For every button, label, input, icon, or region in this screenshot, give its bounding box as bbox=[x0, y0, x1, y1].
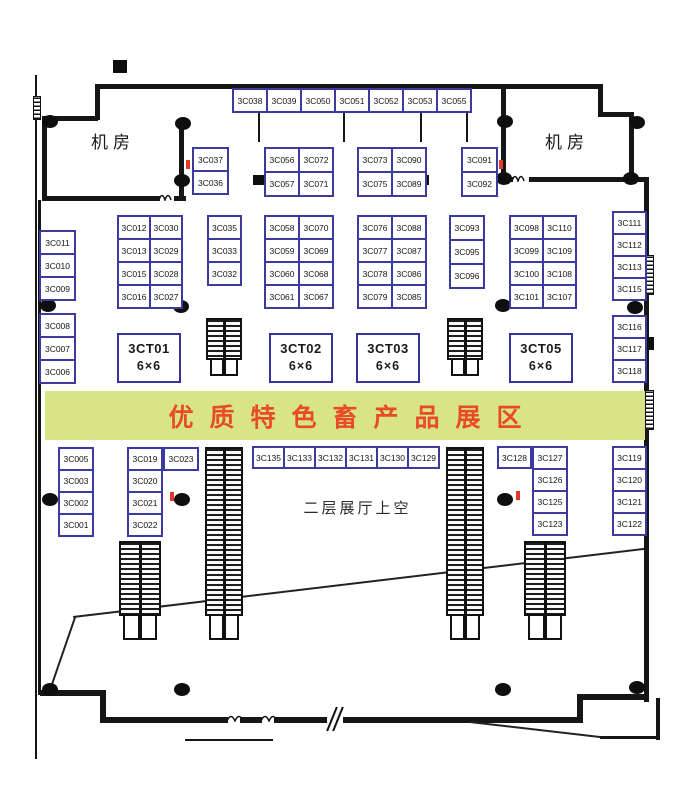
booth-3C010: 3C010 bbox=[41, 255, 74, 276]
booth-group-col-93: 3C0933C0953C096 bbox=[449, 215, 485, 289]
wall bbox=[258, 112, 260, 142]
booth-3C123: 3C123 bbox=[534, 514, 566, 534]
booth-3C129: 3C129 bbox=[409, 448, 438, 467]
booth-3C006: 3C006 bbox=[41, 361, 74, 382]
booth-3C032: 3C032 bbox=[209, 263, 240, 284]
wall bbox=[420, 112, 422, 142]
booth-3C088: 3C088 bbox=[393, 217, 425, 238]
booth-size: 6×6 bbox=[529, 358, 553, 374]
booth-name: 3CT02 bbox=[280, 341, 322, 358]
column-dot bbox=[497, 115, 513, 128]
booth-3C087: 3C087 bbox=[393, 240, 425, 261]
booth-3C079: 3C079 bbox=[359, 286, 391, 307]
booth-3C056: 3C056 bbox=[266, 149, 298, 171]
booth-3C121: 3C121 bbox=[614, 492, 645, 512]
booth-group-col-19: 3C0193C0203C0213C022 bbox=[127, 447, 163, 537]
door-swing-icon bbox=[158, 191, 176, 201]
booth-3C051: 3C051 bbox=[336, 90, 368, 111]
booth-3C086: 3C086 bbox=[393, 263, 425, 284]
booth-3C053: 3C053 bbox=[404, 90, 436, 111]
column-dot bbox=[42, 683, 58, 696]
wall bbox=[600, 736, 660, 739]
booth-group-blk-73: 3C0733C0903C0753C089 bbox=[357, 147, 427, 197]
booth-group-blk-12: 3C0123C0303C0133C0293C0153C0283C0163C027 bbox=[117, 215, 183, 309]
booth-3C069: 3C069 bbox=[300, 240, 332, 261]
booth-3C090: 3C090 bbox=[393, 149, 425, 171]
booth-name: 3CT05 bbox=[520, 341, 562, 358]
booth-3C098: 3C098 bbox=[511, 217, 542, 238]
booth-3C036: 3C036 bbox=[194, 172, 227, 193]
booth-3C035: 3C035 bbox=[209, 217, 240, 238]
booth-3C109: 3C109 bbox=[544, 240, 575, 261]
booth-3C095: 3C095 bbox=[451, 241, 483, 263]
booth-3C011: 3C011 bbox=[41, 232, 74, 253]
column-dot bbox=[497, 493, 513, 506]
booth-group-top-row: 3C0383C0393C0503C0513C0523C0533C055 bbox=[232, 88, 472, 113]
escalator-icon bbox=[205, 447, 243, 640]
booth-name: 3CT01 bbox=[128, 341, 170, 358]
booth-3C108: 3C108 bbox=[544, 263, 575, 284]
booth-3C118: 3C118 bbox=[614, 361, 645, 381]
red-marker bbox=[186, 160, 190, 169]
wall bbox=[42, 196, 160, 201]
booth-3C111: 3C111 bbox=[614, 213, 645, 233]
booth-3C092: 3C092 bbox=[463, 173, 496, 195]
booth-3C003: 3C003 bbox=[60, 471, 92, 491]
booth-3C125: 3C125 bbox=[534, 492, 566, 512]
wall bbox=[179, 118, 184, 200]
booth-3C101: 3C101 bbox=[511, 286, 542, 307]
wall bbox=[577, 694, 649, 700]
column-dot bbox=[623, 172, 639, 185]
ramp-line bbox=[470, 721, 601, 738]
booth-3C029: 3C029 bbox=[151, 240, 181, 261]
booth-group-col-11: 3C0113C0103C009 bbox=[39, 230, 76, 301]
wall bbox=[656, 698, 660, 740]
booth-3C131: 3C131 bbox=[347, 448, 376, 467]
column-dot bbox=[42, 115, 58, 128]
wall bbox=[343, 112, 345, 142]
booth-3C132: 3C132 bbox=[316, 448, 345, 467]
floor-plan: 机房 机房 二层展厅上空 3C0383C0393C0503C0513C0523C… bbox=[0, 0, 690, 793]
column-dot bbox=[174, 493, 190, 506]
booth-3C072: 3C072 bbox=[300, 149, 332, 171]
booth-group-cell-128: 3C128 bbox=[497, 446, 532, 469]
booth-3C020: 3C020 bbox=[129, 471, 161, 491]
machine-room-right-label: 机房 bbox=[532, 128, 602, 153]
booth-3C133: 3C133 bbox=[285, 448, 314, 467]
booth-3CT02: 3CT02 6×6 bbox=[269, 333, 333, 383]
booth-3C059: 3C059 bbox=[266, 240, 298, 261]
booth-3C116: 3C116 bbox=[614, 317, 645, 337]
booth-3C126: 3C126 bbox=[534, 470, 566, 490]
booth-group-col-119: 3C1193C1203C1213C122 bbox=[612, 446, 647, 536]
booth-3C073: 3C073 bbox=[359, 149, 391, 171]
booth-group-col-35: 3C0353C0333C032 bbox=[207, 215, 242, 286]
window-hatch bbox=[33, 96, 41, 120]
booth-group-col-05: 3C0053C0033C0023C001 bbox=[58, 447, 94, 537]
booth-3C128: 3C128 bbox=[499, 448, 530, 467]
booth-3C085: 3C085 bbox=[393, 286, 425, 307]
wall bbox=[95, 84, 100, 120]
booth-group-blk-56: 3C0563C0723C0573C071 bbox=[264, 147, 334, 197]
booth-3C002: 3C002 bbox=[60, 493, 92, 513]
booth-group-col-08: 3C0083C0073C006 bbox=[39, 313, 76, 384]
booth-group-col-111: 3C1113C1123C1133C115 bbox=[612, 211, 647, 301]
booth-group-col-91: 3C0913C092 bbox=[461, 147, 498, 197]
booth-3C110: 3C110 bbox=[544, 217, 575, 238]
stairs-icon bbox=[447, 318, 483, 376]
door-swing-icon bbox=[226, 712, 244, 722]
booth-3C099: 3C099 bbox=[511, 240, 542, 261]
booth-3C060: 3C060 bbox=[266, 263, 298, 284]
booth-3C022: 3C022 bbox=[129, 515, 161, 535]
red-marker bbox=[516, 491, 520, 500]
stairs-icon bbox=[206, 318, 242, 376]
booth-3C027: 3C027 bbox=[151, 286, 181, 307]
booth-3C009: 3C009 bbox=[41, 278, 74, 299]
booth-3CT05: 3CT05 6×6 bbox=[509, 333, 573, 383]
booth-3C055: 3C055 bbox=[438, 90, 470, 111]
booth-3C012: 3C012 bbox=[119, 217, 149, 238]
red-marker bbox=[499, 160, 503, 169]
wall bbox=[466, 112, 468, 142]
booth-3C067: 3C067 bbox=[300, 286, 332, 307]
booth-3C120: 3C120 bbox=[614, 470, 645, 490]
wall bbox=[100, 717, 228, 723]
booth-3C093: 3C093 bbox=[451, 217, 483, 239]
atrium-label: 二层展厅上空 bbox=[270, 497, 445, 518]
booth-group-blk-76: 3C0763C0883C0773C0873C0783C0863C0793C085 bbox=[357, 215, 427, 309]
booth-3C089: 3C089 bbox=[393, 173, 425, 195]
escalator-icon bbox=[119, 541, 161, 640]
booth-3C107: 3C107 bbox=[544, 286, 575, 307]
column-dot bbox=[629, 681, 645, 694]
escalator-icon bbox=[524, 541, 566, 640]
column-dot bbox=[496, 172, 512, 185]
window-hatch bbox=[645, 390, 654, 430]
booth-3C058: 3C058 bbox=[266, 217, 298, 238]
booth-3C100: 3C100 bbox=[511, 263, 542, 284]
booth-3C112: 3C112 bbox=[614, 235, 645, 255]
door-swing-icon bbox=[260, 712, 278, 722]
booth-3C135: 3C135 bbox=[254, 448, 283, 467]
booth-3C038: 3C038 bbox=[234, 90, 266, 111]
booth-3C007: 3C007 bbox=[41, 338, 74, 359]
booth-3C021: 3C021 bbox=[129, 493, 161, 513]
machine-room-left-label: 机房 bbox=[78, 128, 148, 153]
booth-3C039: 3C039 bbox=[268, 90, 300, 111]
booth-3C033: 3C033 bbox=[209, 240, 240, 261]
column-dot bbox=[174, 174, 190, 187]
booth-3C117: 3C117 bbox=[614, 339, 645, 359]
booth-3C076: 3C076 bbox=[359, 217, 391, 238]
booth-group-col-127: 3C1273C1263C1253C123 bbox=[532, 446, 568, 536]
column-dot bbox=[627, 301, 643, 314]
booth-3C096: 3C096 bbox=[451, 265, 483, 287]
booth-3C119: 3C119 bbox=[614, 448, 645, 468]
booth-group-row-135: 3C1353C1333C1323C1313C1303C129 bbox=[252, 446, 440, 469]
booth-3CT01: 3CT01 6×6 bbox=[117, 333, 181, 383]
booth-3C091: 3C091 bbox=[463, 149, 496, 171]
red-marker bbox=[170, 492, 174, 501]
booth-3C130: 3C130 bbox=[378, 448, 407, 467]
booth-3C115: 3C115 bbox=[614, 279, 645, 299]
wall bbox=[185, 739, 273, 741]
column-dot bbox=[495, 683, 511, 696]
banner-text: 优质特色畜产品展区 bbox=[152, 398, 537, 434]
wall bbox=[274, 717, 581, 723]
booth-3CT03: 3CT03 6×6 bbox=[356, 333, 420, 383]
booth-group-col-3637: 3C0373C036 bbox=[192, 147, 229, 195]
booth-3C070: 3C070 bbox=[300, 217, 332, 238]
column-dot bbox=[174, 683, 190, 696]
booth-size: 6×6 bbox=[289, 358, 313, 374]
wall bbox=[35, 75, 37, 759]
booth-3C013: 3C013 bbox=[119, 240, 149, 261]
booth-3C008: 3C008 bbox=[41, 315, 74, 336]
booth-3C077: 3C077 bbox=[359, 240, 391, 261]
booth-3C078: 3C078 bbox=[359, 263, 391, 284]
escalator-icon bbox=[446, 447, 484, 640]
column-dot bbox=[175, 117, 191, 130]
booth-size: 6×6 bbox=[376, 358, 400, 374]
booth-3C005: 3C005 bbox=[60, 449, 92, 469]
booth-3C015: 3C015 bbox=[119, 263, 149, 284]
column-dot bbox=[629, 116, 645, 129]
structure-block bbox=[113, 60, 127, 73]
booth-3C001: 3C001 bbox=[60, 515, 92, 535]
booth-group-cell-23: 3C023 bbox=[163, 447, 199, 471]
booth-3C019: 3C019 bbox=[129, 449, 161, 469]
booth-3C057: 3C057 bbox=[266, 173, 298, 195]
booth-3C023: 3C023 bbox=[165, 449, 197, 469]
wall-break-icon bbox=[327, 706, 343, 732]
booth-3C028: 3C028 bbox=[151, 263, 181, 284]
booth-size: 6×6 bbox=[137, 358, 161, 374]
exhibition-zone-banner: 优质特色畜产品展区 bbox=[45, 391, 645, 440]
booth-3C050: 3C050 bbox=[302, 90, 334, 111]
booth-3C075: 3C075 bbox=[359, 173, 391, 195]
wall bbox=[42, 116, 47, 200]
booth-group-blk-58: 3C0583C0703C0593C0693C0603C0683C0613C067 bbox=[264, 215, 334, 309]
ramp-line bbox=[50, 616, 76, 688]
booth-3C113: 3C113 bbox=[614, 257, 645, 277]
booth-3C016: 3C016 bbox=[119, 286, 149, 307]
booth-group-col-116: 3C1163C1173C118 bbox=[612, 315, 647, 383]
booth-3C071: 3C071 bbox=[300, 173, 332, 195]
booth-3C127: 3C127 bbox=[534, 448, 566, 468]
column-dot bbox=[42, 493, 58, 506]
booth-3C037: 3C037 bbox=[194, 149, 227, 170]
booth-3C061: 3C061 bbox=[266, 286, 298, 307]
door-stop-block bbox=[253, 175, 264, 185]
booth-group-blk-98: 3C0983C1103C0993C1093C1003C1083C1013C107 bbox=[509, 215, 577, 309]
booth-3C052: 3C052 bbox=[370, 90, 402, 111]
booth-name: 3CT03 bbox=[367, 341, 409, 358]
booth-3C122: 3C122 bbox=[614, 514, 645, 534]
booth-3C068: 3C068 bbox=[300, 263, 332, 284]
door-swing-icon bbox=[511, 172, 529, 182]
booth-3C030: 3C030 bbox=[151, 217, 181, 238]
